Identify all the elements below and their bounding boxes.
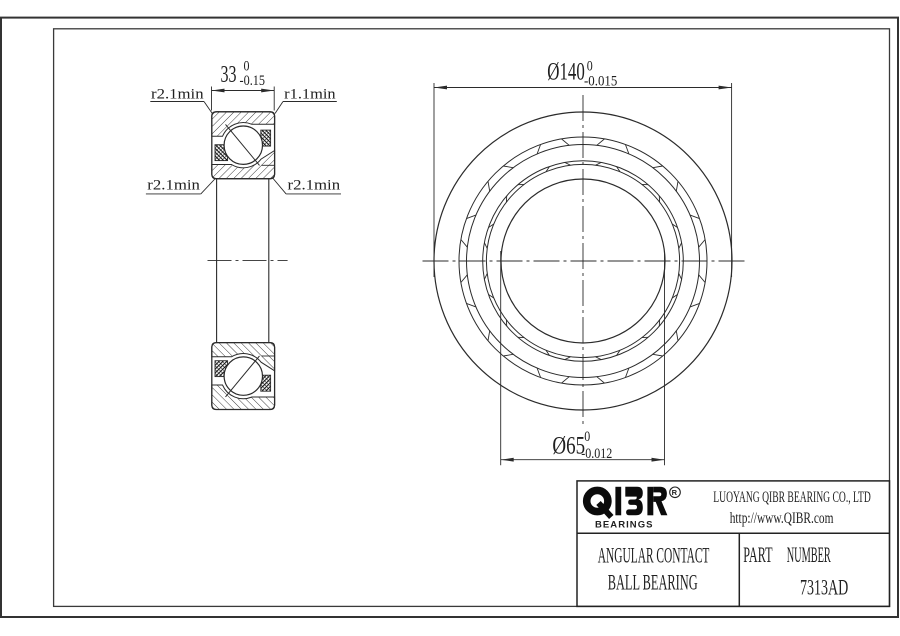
svg-text:Ø65: Ø65 bbox=[552, 432, 585, 459]
svg-text:Ø140: Ø140 bbox=[547, 59, 585, 86]
svg-text:r1.1min: r1.1min bbox=[284, 86, 336, 102]
svg-text:33: 33 bbox=[221, 62, 237, 88]
svg-text:r2.1min: r2.1min bbox=[288, 178, 341, 194]
svg-text:0: 0 bbox=[587, 58, 593, 74]
svg-text:R: R bbox=[672, 488, 678, 497]
svg-text:http://www.QIBR.com: http://www.QIBR.com bbox=[730, 510, 834, 527]
svg-text:r2.1min: r2.1min bbox=[151, 86, 204, 102]
svg-text:ANGULAR CONTACT: ANGULAR CONTACT bbox=[598, 543, 710, 568]
svg-text:0: 0 bbox=[584, 429, 590, 445]
svg-text:BALL BEARING: BALL BEARING bbox=[608, 570, 698, 595]
svg-text:BEARINGS: BEARINGS bbox=[595, 520, 653, 531]
svg-text:LUOYANG QIBR BEARING CO., LTD: LUOYANG QIBR BEARING CO., LTD bbox=[713, 489, 871, 506]
svg-text:r2.1min: r2.1min bbox=[147, 178, 200, 194]
svg-text:-0.012: -0.012 bbox=[581, 446, 612, 462]
svg-text:NUMBER: NUMBER bbox=[787, 542, 831, 567]
svg-text:-0.015: -0.015 bbox=[584, 74, 617, 90]
svg-text:PART: PART bbox=[743, 542, 773, 567]
svg-text:-0.15: -0.15 bbox=[240, 73, 266, 89]
svg-text:7313AD: 7313AD bbox=[800, 575, 848, 600]
